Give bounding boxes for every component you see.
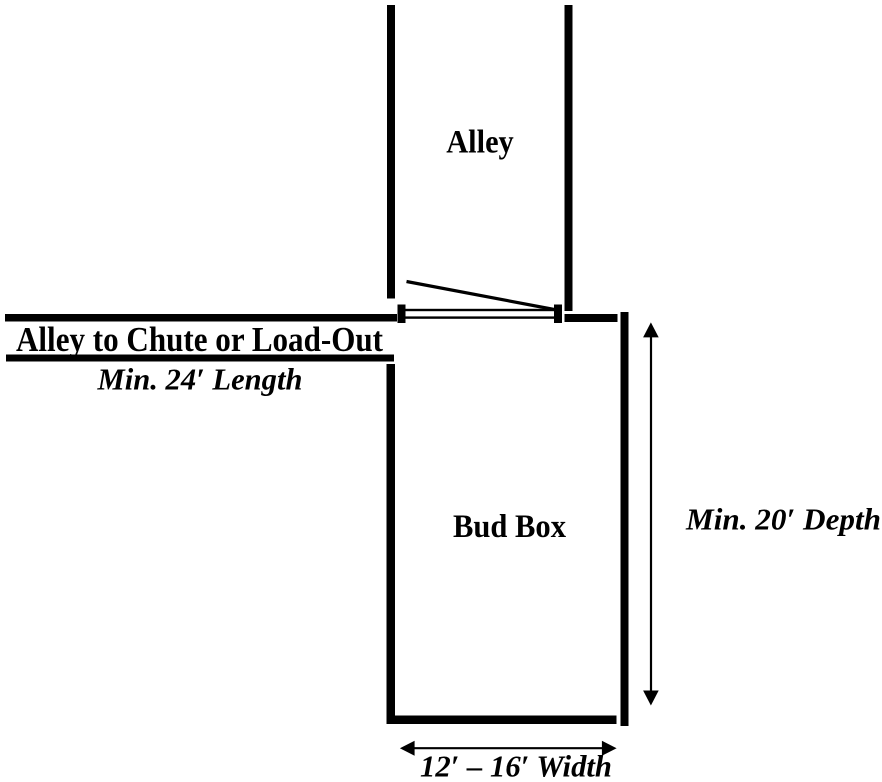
- svg-text:Min. 20′ Depth: Min. 20′ Depth: [685, 502, 881, 537]
- svg-text:Bud Box: Bud Box: [453, 509, 566, 545]
- svg-text:Alley to Chute or Load-Out: Alley to Chute or Load-Out: [16, 321, 383, 359]
- svg-text:Alley: Alley: [446, 124, 514, 160]
- svg-text:Min. 24′ Length: Min. 24′ Length: [97, 362, 303, 397]
- svg-text:12′ – 16′ Width: 12′ – 16′ Width: [420, 749, 612, 782]
